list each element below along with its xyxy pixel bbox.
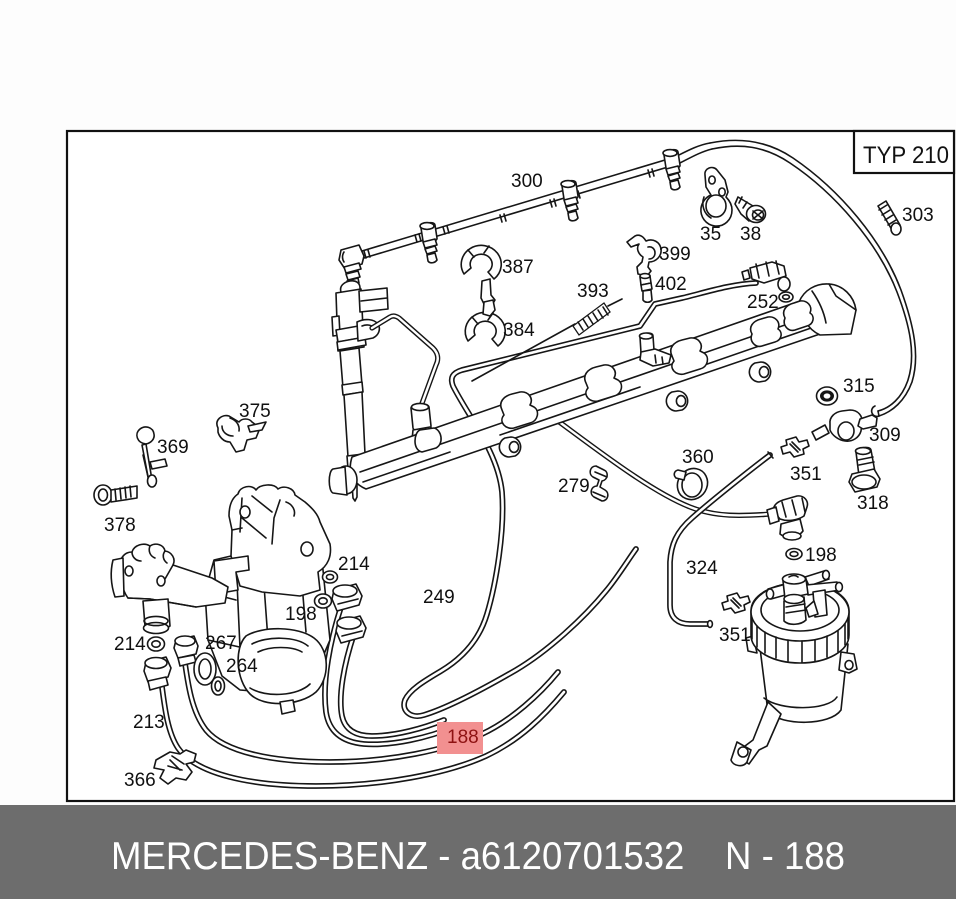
svg-text:303: 303 <box>902 205 934 226</box>
svg-text:393: 393 <box>577 281 609 302</box>
svg-text:399: 399 <box>659 244 691 265</box>
svg-text:213: 213 <box>133 712 165 733</box>
svg-text:309: 309 <box>869 425 901 446</box>
svg-text:35: 35 <box>700 224 721 245</box>
svg-text:351: 351 <box>719 625 751 646</box>
svg-text:264: 264 <box>226 656 258 677</box>
svg-text:300: 300 <box>511 171 543 192</box>
svg-text:360: 360 <box>682 447 714 468</box>
svg-text:188: 188 <box>447 727 479 748</box>
svg-text:214: 214 <box>114 634 146 655</box>
svg-text:38: 38 <box>740 224 761 245</box>
svg-text:252: 252 <box>747 292 779 313</box>
svg-text:378: 378 <box>104 515 136 536</box>
svg-text:TYP 210: TYP 210 <box>863 142 949 169</box>
svg-text:402: 402 <box>655 274 687 295</box>
svg-text:384: 384 <box>503 320 535 341</box>
svg-text:324: 324 <box>686 558 718 579</box>
svg-text:318: 318 <box>857 493 889 514</box>
svg-text:369: 369 <box>157 437 189 458</box>
svg-text:214: 214 <box>338 554 370 575</box>
svg-text:249: 249 <box>423 587 455 608</box>
svg-text:366: 366 <box>124 770 156 791</box>
svg-text:375: 375 <box>239 401 271 422</box>
svg-text:MERCEDES-BENZ - a6120701532: MERCEDES-BENZ - a6120701532 N - 188 <box>111 835 845 878</box>
svg-text:279: 279 <box>558 476 590 497</box>
svg-text:315: 315 <box>843 376 875 397</box>
svg-text:387: 387 <box>502 257 534 278</box>
svg-text:267: 267 <box>205 633 237 654</box>
svg-text:198: 198 <box>285 604 317 625</box>
svg-text:351: 351 <box>790 464 822 485</box>
svg-text:198: 198 <box>805 545 837 566</box>
